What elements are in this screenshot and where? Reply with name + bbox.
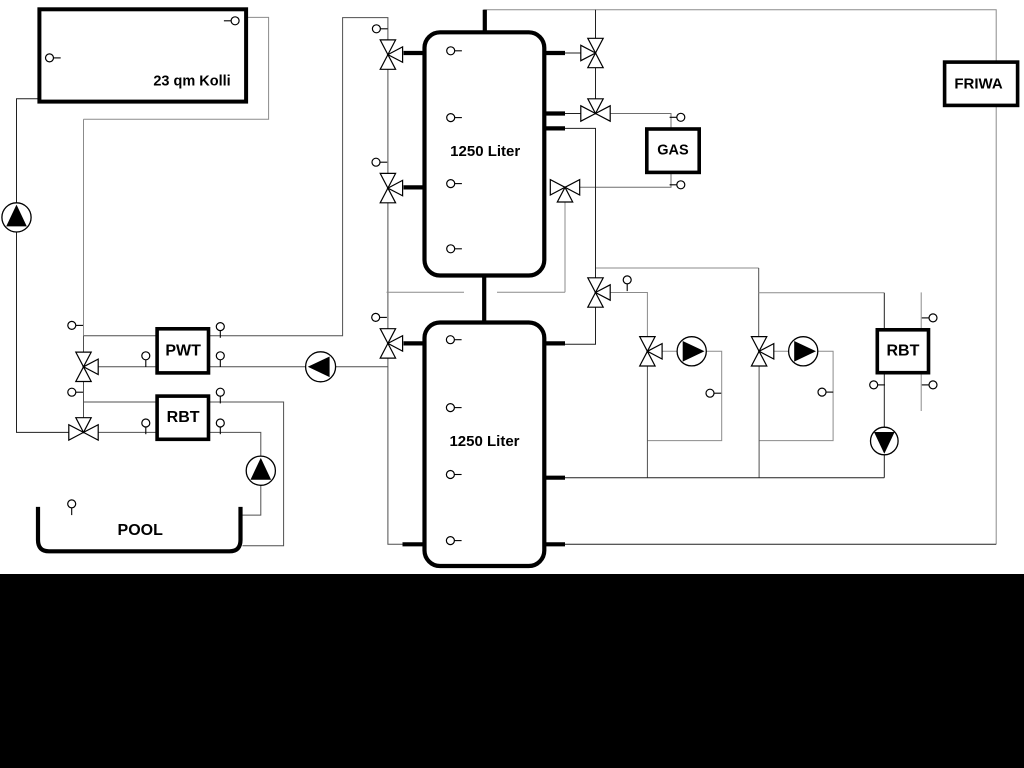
svg-text:23 qm Kolli: 23 qm Kolli [153, 73, 230, 89]
svg-text:1250 Liter: 1250 Liter [449, 433, 519, 450]
svg-text:POOL: POOL [118, 522, 164, 539]
svg-text:GAS: GAS [657, 143, 689, 159]
svg-text:RBT: RBT [167, 409, 200, 426]
svg-text:FRIWA: FRIWA [954, 75, 1002, 92]
svg-text:RBT: RBT [886, 343, 919, 360]
svg-text:PWT: PWT [165, 343, 201, 360]
svg-text:1250 Liter: 1250 Liter [450, 143, 520, 160]
